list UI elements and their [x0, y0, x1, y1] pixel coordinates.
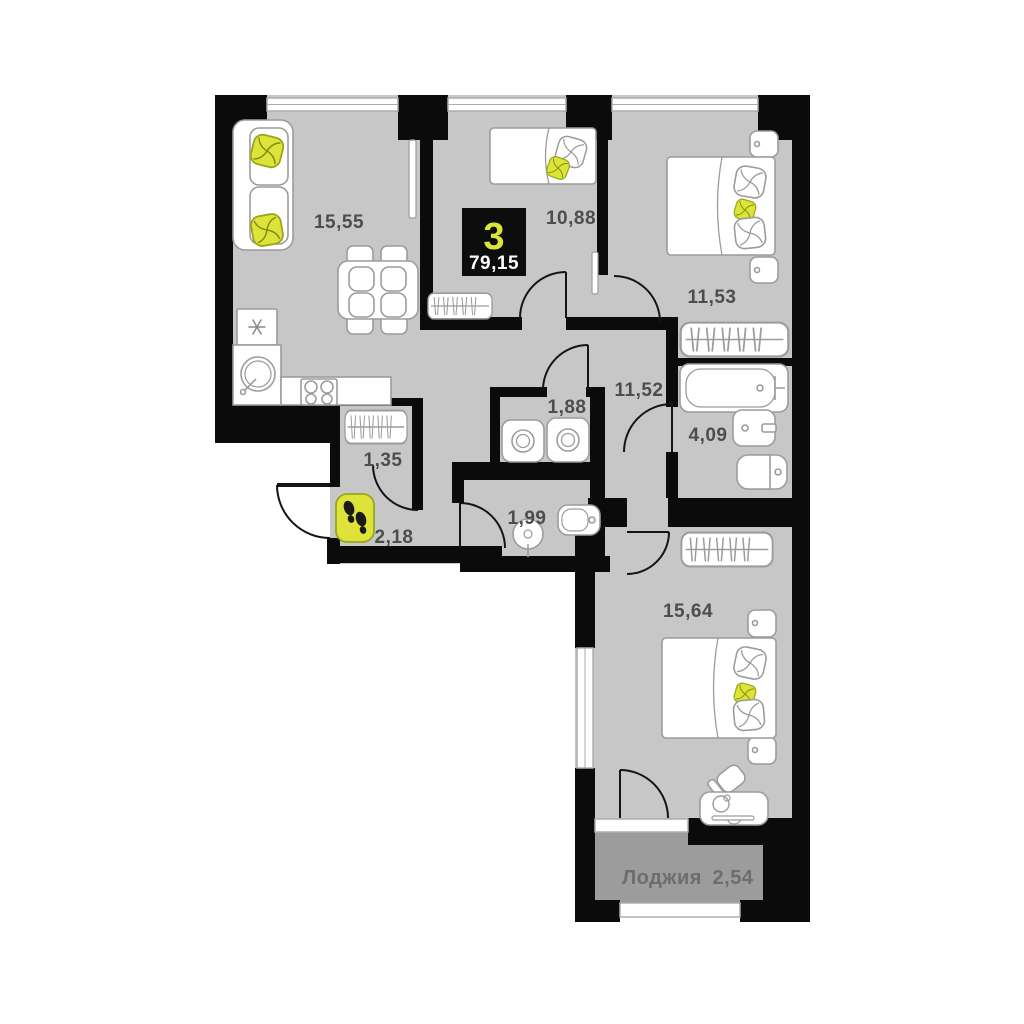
divider-door-leaf	[592, 252, 598, 294]
badge-rooms-count: 3	[483, 216, 504, 258]
label-wc: 1,99	[508, 508, 547, 529]
nightstand-icon	[748, 737, 776, 764]
label-bedroom-bottom: 15,64	[663, 601, 713, 622]
bed-pillow-icon	[733, 699, 766, 732]
apartment-badge: 3 79,15	[462, 208, 526, 276]
floor-plan: 3 79,15 15,55 10,88 11,53 11,52 1,88 4,0…	[0, 0, 1024, 1024]
floor-plan-canvas: 3 79,15 15,55 10,88 11,53 11,52 1,88 4,0…	[0, 0, 1024, 1024]
toilet-icon	[737, 455, 787, 489]
fridge-icon	[237, 309, 277, 345]
entry-door	[277, 485, 330, 538]
label-hallway: 11,52	[615, 380, 664, 401]
bed-pillow-icon	[732, 645, 768, 681]
bed-pillow-icon	[733, 165, 768, 200]
wardrobe-icon	[681, 323, 789, 357]
bathtub-icon	[680, 364, 788, 412]
stove-icon	[301, 379, 337, 405]
label-closet: 1,35	[364, 450, 403, 471]
wardrobe-icon	[345, 411, 407, 444]
window-loggia-top	[595, 819, 688, 832]
mini-bath-icon	[558, 505, 600, 535]
entry-marker	[336, 494, 374, 542]
washing-machine-icon	[547, 418, 589, 462]
living-door-leaf	[409, 140, 416, 218]
sofa-pillow-yellow-2	[250, 213, 285, 248]
label-bedroom-small: 10,88	[546, 208, 596, 229]
window-loggia-bottom	[620, 903, 740, 917]
desk-icon	[700, 792, 768, 825]
label-loggia-area: 2,54	[713, 867, 754, 889]
washbasin-icon	[733, 410, 776, 446]
label-laundry: 1,88	[548, 397, 587, 418]
nightstand-icon	[748, 610, 776, 637]
badge-total-area: 79,15	[469, 253, 519, 274]
wardrobe-icon	[681, 533, 772, 567]
nightstand-icon	[750, 131, 778, 157]
label-living: 15,55	[314, 212, 364, 233]
radiator-icon	[428, 293, 492, 319]
nightstand-icon	[750, 257, 778, 283]
label-loggia-name: Лоджия	[622, 867, 702, 889]
label-bathroom: 4,09	[689, 425, 728, 446]
label-entry: 2,18	[375, 527, 414, 548]
bed-pillow-icon	[734, 217, 767, 250]
washing-machine-icon	[502, 420, 544, 462]
label-bedroom-right: 11,53	[688, 287, 737, 308]
